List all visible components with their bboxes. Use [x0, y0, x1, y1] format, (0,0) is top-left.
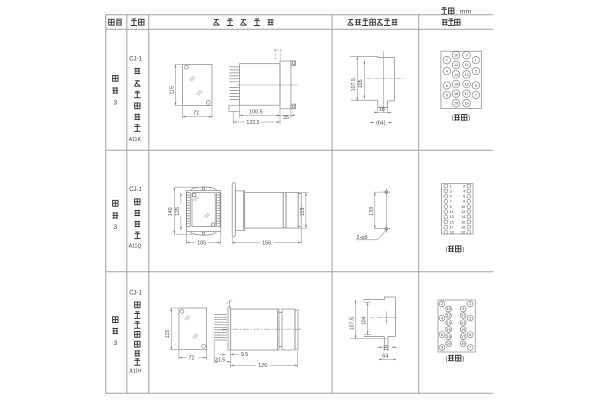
- svg-text:10: 10: [454, 54, 458, 58]
- svg-text:122.5: 122.5: [246, 120, 259, 126]
- svg-text:125: 125: [175, 207, 181, 216]
- svg-text:105: 105: [197, 240, 206, 246]
- svg-text:126: 126: [258, 363, 267, 369]
- svg-text:19: 19: [464, 102, 468, 106]
- svg-text:2: 2: [441, 302, 443, 306]
- svg-text:72: 72: [193, 111, 199, 117]
- svg-text:16: 16: [454, 82, 458, 86]
- svg-text:10: 10: [447, 307, 451, 311]
- svg-text:104: 104: [361, 316, 367, 325]
- svg-text:): ): [462, 246, 464, 253]
- svg-text:CJ-1: CJ-1: [129, 187, 142, 193]
- svg-text:8: 8: [446, 93, 448, 97]
- svg-text:18: 18: [454, 92, 458, 96]
- svg-text:6: 6: [463, 195, 465, 199]
- svg-text:17: 17: [461, 335, 465, 339]
- svg-text:9.5: 9.5: [241, 352, 248, 358]
- svg-text:115: 115: [165, 330, 171, 338]
- svg-text:CJ-1: CJ-1: [129, 291, 142, 297]
- svg-text:4: 4: [446, 70, 448, 74]
- svg-text:20: 20: [447, 342, 451, 346]
- svg-text:15: 15: [464, 82, 468, 86]
- svg-text:4: 4: [441, 316, 443, 320]
- svg-text:): ): [462, 355, 464, 362]
- svg-text:9: 9: [465, 54, 467, 58]
- svg-text:15: 15: [450, 220, 454, 224]
- svg-text:18: 18: [447, 335, 451, 339]
- svg-text:2: 2: [463, 184, 465, 188]
- svg-text:16: 16: [383, 345, 389, 351]
- svg-text:20: 20: [461, 231, 465, 235]
- svg-text:13: 13: [464, 73, 468, 77]
- svg-text:100.5: 100.5: [249, 109, 262, 115]
- svg-text:8: 8: [463, 200, 465, 204]
- svg-text:A11H: A11H: [129, 369, 142, 375]
- svg-text:133: 133: [369, 207, 375, 216]
- svg-text:12: 12: [461, 210, 465, 214]
- svg-text:A11K: A11K: [129, 137, 142, 143]
- svg-text:107.5: 107.5: [349, 317, 355, 330]
- svg-text:6: 6: [446, 84, 448, 88]
- svg-text:7: 7: [450, 200, 452, 204]
- svg-text:7: 7: [475, 93, 477, 97]
- svg-text:115: 115: [169, 86, 175, 94]
- svg-text:12: 12: [447, 314, 451, 318]
- svg-text:7: 7: [469, 346, 471, 350]
- svg-text:16: 16: [447, 328, 451, 332]
- svg-text:5: 5: [450, 195, 452, 199]
- svg-text:3: 3: [114, 99, 118, 106]
- svg-text:1: 1: [469, 302, 471, 306]
- svg-text:3: 3: [469, 316, 471, 320]
- svg-text:12: 12: [454, 63, 458, 67]
- svg-text:105: 105: [358, 79, 364, 88]
- svg-text:9: 9: [450, 205, 452, 209]
- svg-text:107.5: 107.5: [351, 78, 357, 91]
- svg-text:14: 14: [454, 73, 458, 77]
- svg-text:156: 156: [262, 240, 271, 246]
- svg-text:16: 16: [461, 220, 465, 224]
- svg-text:A11Q: A11Q: [129, 243, 142, 249]
- svg-text:5: 5: [469, 333, 471, 337]
- svg-text:115: 115: [300, 208, 306, 216]
- svg-text:14: 14: [447, 321, 451, 325]
- svg-text:140: 140: [168, 207, 174, 216]
- svg-text:6: 6: [441, 333, 443, 337]
- svg-text:35: 35: [283, 115, 289, 121]
- svg-text:1: 1: [450, 184, 452, 188]
- svg-text:31.5: 31.5: [215, 357, 225, 363]
- svg-text:1: 1: [475, 59, 477, 63]
- svg-text:64: 64: [382, 353, 388, 359]
- svg-text:17: 17: [450, 226, 454, 230]
- svg-text:(64): (64): [376, 121, 386, 127]
- svg-text:16: 16: [379, 107, 385, 113]
- svg-text:13: 13: [461, 321, 465, 325]
- svg-text:18: 18: [461, 226, 465, 230]
- svg-text:13: 13: [450, 215, 454, 219]
- svg-text:): ): [468, 115, 470, 122]
- svg-text:3: 3: [475, 70, 477, 74]
- svg-text:15: 15: [461, 328, 465, 332]
- svg-text:17: 17: [464, 92, 468, 96]
- svg-text:10: 10: [461, 205, 465, 209]
- svg-text:9: 9: [462, 307, 464, 311]
- svg-text:72: 72: [189, 355, 195, 361]
- svg-text:3: 3: [450, 189, 452, 193]
- svg-text:14: 14: [461, 215, 465, 219]
- svg-text:5: 5: [475, 84, 477, 88]
- svg-text:11: 11: [461, 314, 465, 318]
- svg-text:19: 19: [461, 342, 465, 346]
- svg-text:19: 19: [450, 231, 454, 235]
- svg-text:4: 4: [463, 189, 465, 193]
- svg-text:CJ-1: CJ-1: [129, 57, 142, 63]
- svg-text:20: 20: [454, 102, 458, 106]
- svg-text:11: 11: [465, 63, 469, 67]
- svg-text:11: 11: [450, 210, 454, 214]
- svg-text:3: 3: [114, 224, 118, 231]
- svg-text:8: 8: [441, 346, 443, 350]
- svg-text:2: 2: [446, 59, 448, 63]
- svg-text:3: 3: [114, 340, 118, 347]
